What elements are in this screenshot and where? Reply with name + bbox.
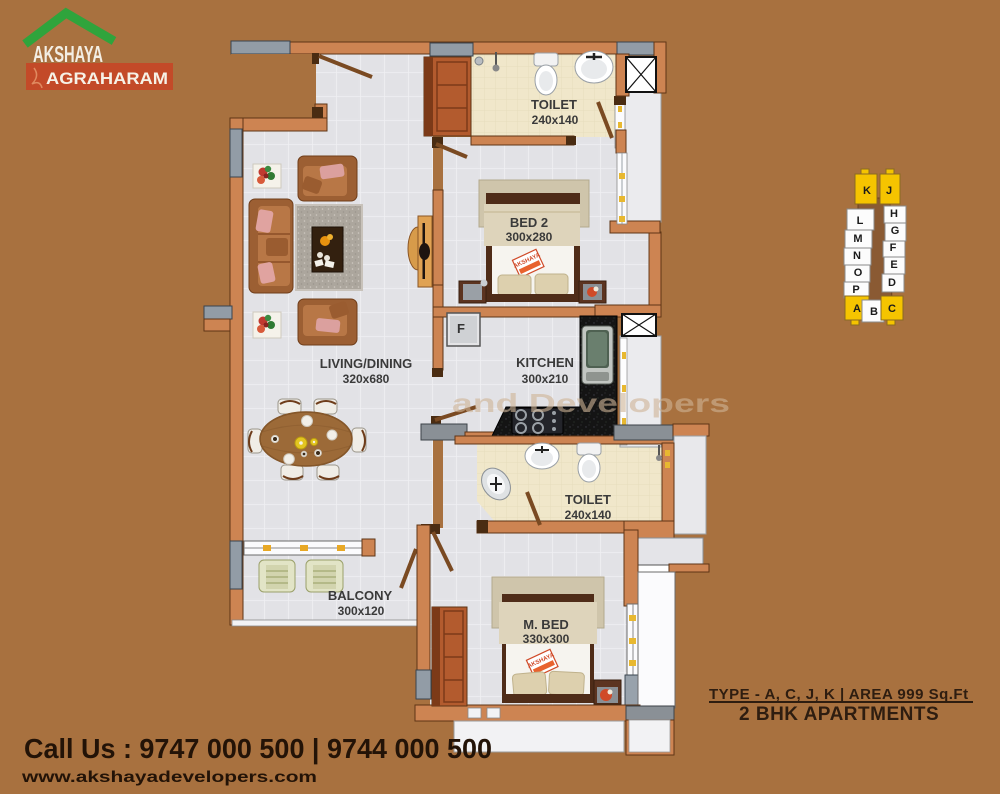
svg-text:240x140: 240x140 [565,508,612,522]
svg-text:A: A [853,303,861,315]
svg-text:300x120: 300x120 [338,604,385,618]
svg-text:B: B [870,306,878,318]
svg-text:300x210: 300x210 [522,372,569,386]
svg-text:2 BHK APARTMENTS: 2 BHK APARTMENTS [739,704,939,725]
svg-text:TOILET: TOILET [565,492,611,507]
svg-text:BED 2: BED 2 [510,215,548,230]
svg-text:D: D [888,277,896,289]
svg-text:N: N [853,250,861,262]
svg-text:300x280: 300x280 [506,230,553,244]
svg-text:and Developers: and Developers [452,388,730,418]
svg-text:LIVING/DINING: LIVING/DINING [320,356,412,371]
svg-text:F: F [890,242,897,254]
svg-text:www.akshayadevelopers.com: www.akshayadevelopers.com [21,769,317,786]
svg-text:C: C [888,303,896,315]
svg-text:AGRAHARAM: AGRAHARAM [46,69,168,88]
svg-text:240x140: 240x140 [532,113,579,127]
svg-text:L: L [857,215,864,227]
svg-text:M. BED: M. BED [523,617,569,632]
svg-text:H: H [890,208,898,220]
svg-text:320x680: 320x680 [343,372,390,386]
svg-text:M: M [853,233,862,245]
svg-text:BALCONY: BALCONY [328,588,393,603]
svg-text:TYPE - A, C, J, K | AREA 999 S: TYPE - A, C, J, K | AREA 999 Sq.Ft [709,686,969,703]
svg-text:F: F [457,321,465,336]
svg-text:KITCHEN: KITCHEN [516,355,574,370]
svg-text:P: P [852,284,859,296]
svg-text:Call Us : 9747 000 500 | 9744: Call Us : 9747 000 500 | 9744 000 500 [24,733,492,764]
svg-text:330x300: 330x300 [523,632,570,646]
svg-text:E: E [890,259,897,271]
svg-text:J: J [886,185,892,197]
svg-text:O: O [854,267,863,279]
svg-text:G: G [891,225,900,237]
svg-text:K: K [863,185,871,197]
svg-text:TOILET: TOILET [531,97,577,112]
